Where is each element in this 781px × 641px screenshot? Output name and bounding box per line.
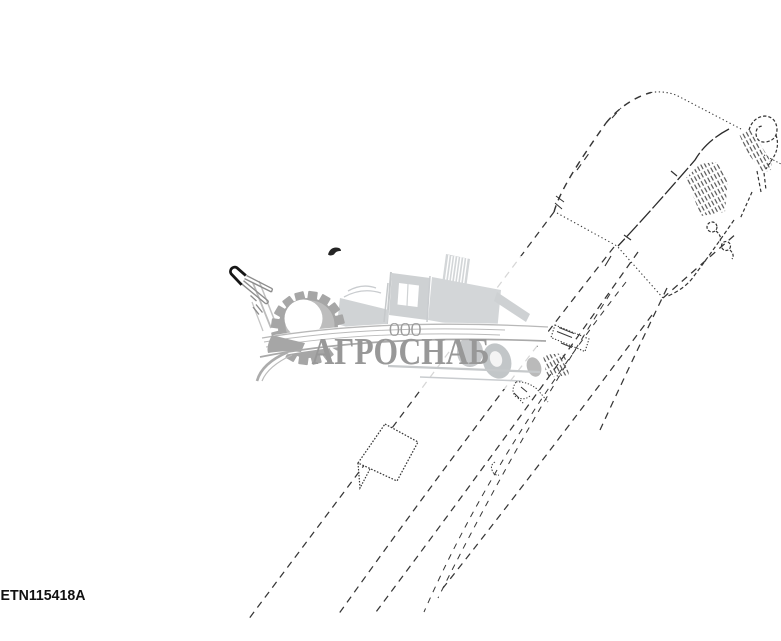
- svg-text:ETN115418A: ETN115418A: [1, 587, 86, 604]
- svg-text:АГРОСНАБ: АГРОСНАБ: [312, 331, 490, 373]
